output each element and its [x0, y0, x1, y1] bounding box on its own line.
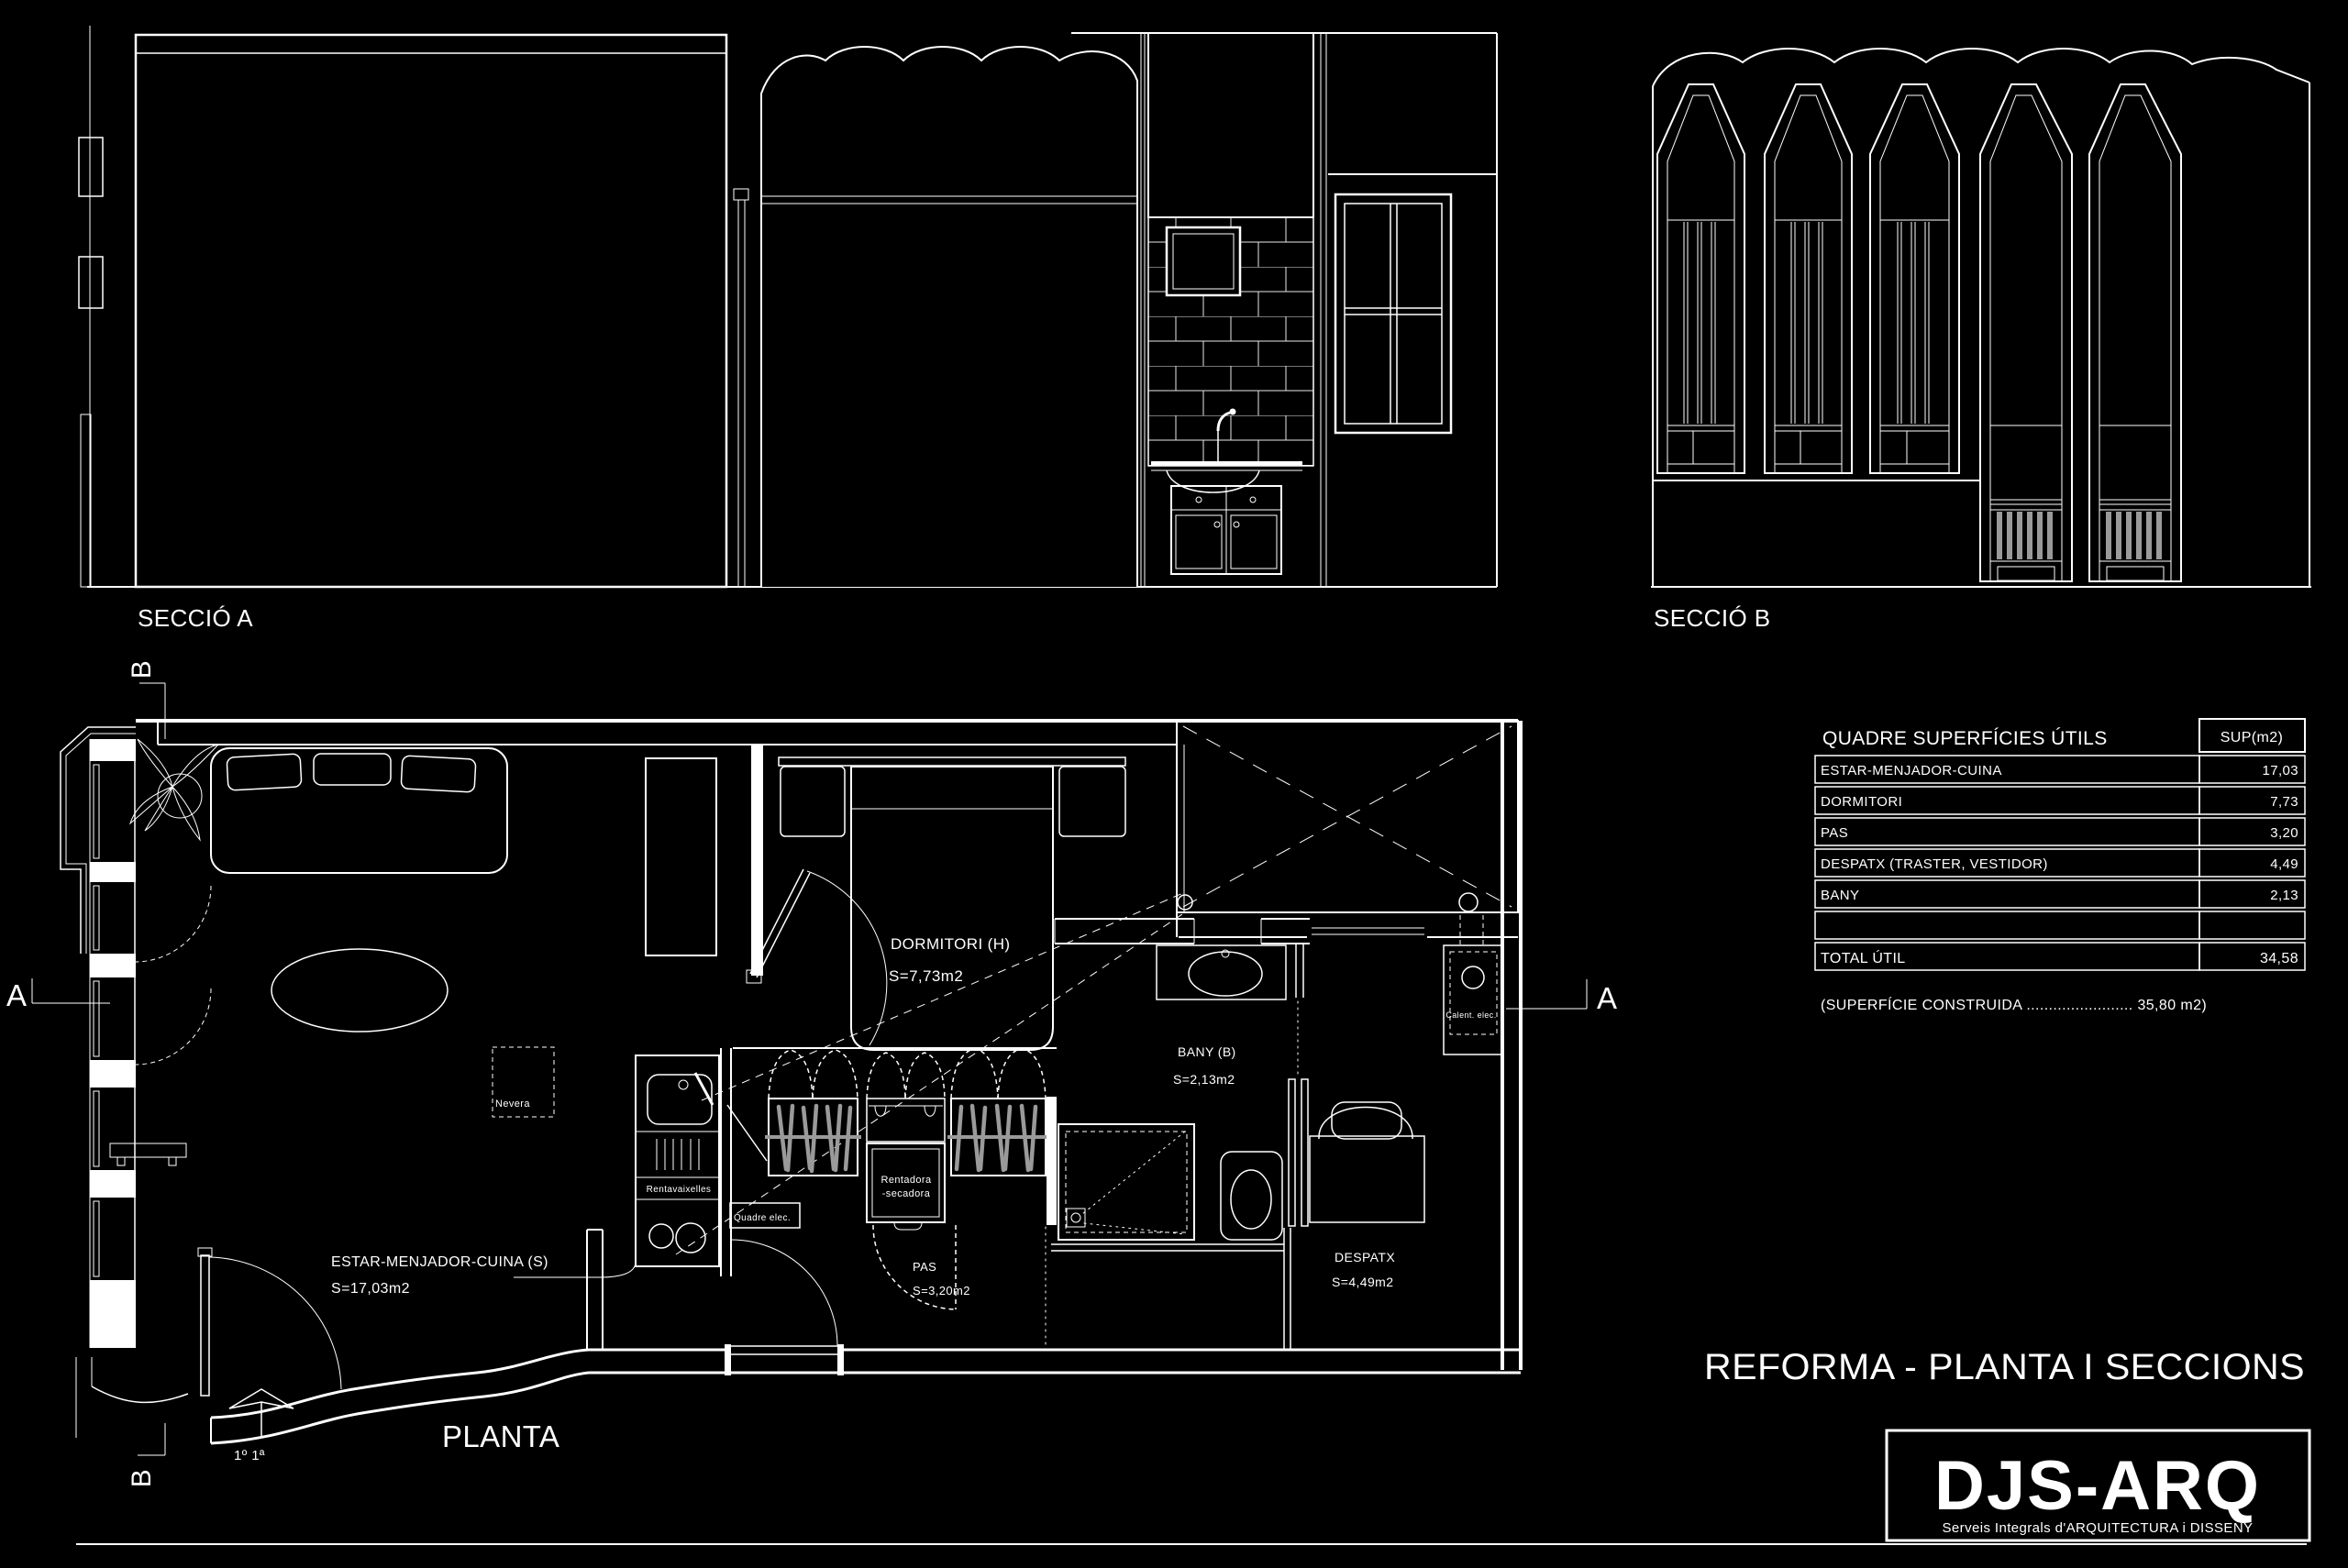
- table-row-empty: [1815, 911, 2305, 939]
- total-label: TOTAL ÚTIL: [1821, 949, 1906, 966]
- plant-icon: [130, 739, 218, 840]
- estar-name: ESTAR-MENJADOR-CUINA (S): [331, 1254, 548, 1270]
- arched-window: [1765, 84, 1852, 473]
- row-label: BANY: [1821, 888, 1859, 903]
- rentadora-label-1: Rentadora: [881, 1175, 932, 1186]
- arched-window: [1870, 84, 1959, 473]
- sliding-door-leaf: [1301, 1079, 1308, 1226]
- bany-name: BANY (B): [1178, 1044, 1236, 1059]
- arched-window: [1657, 84, 1744, 473]
- washer-dryer: Rentadora -secadora: [867, 1143, 945, 1230]
- table-footnote: (SUPERFÍCIE CONSTRUIDA .................…: [1821, 996, 2207, 1013]
- section-marker-a-right: A: [1506, 979, 1617, 1015]
- table-row: DESPATX (TRASTER, VESTIDOR) 4,49: [1815, 849, 2305, 877]
- table-row: BANY 2,13: [1815, 880, 2305, 908]
- pas-name: PAS: [913, 1260, 936, 1274]
- row-label: PAS: [1821, 825, 1848, 841]
- marker-b-letter: B: [127, 1469, 157, 1487]
- bany-area: S=2,13m2: [1173, 1072, 1235, 1087]
- sliding-door-leaf: [1289, 1079, 1295, 1226]
- wardrobe-door-swings: [769, 1048, 1046, 1099]
- toilet: [1221, 1152, 1282, 1240]
- sink-bowl: [1167, 470, 1259, 492]
- facade-left: [61, 727, 211, 1348]
- logo-subtitle: Serveis Integrals d'ARQUITECTURA i DISSE…: [1943, 1520, 2254, 1536]
- section-a-left-wall: [136, 35, 726, 587]
- wardrobe-area: Rentadora -secadora: [765, 1048, 1057, 1346]
- seccio-b-drawing: [1651, 49, 2311, 587]
- entry-door-leaf: [201, 1255, 209, 1396]
- bany-room: BANY (B) S=2,13m2: [1051, 919, 1310, 1251]
- fridge-nevera: Nevera: [493, 1047, 554, 1117]
- pas-corridor: PAS S=3,20m2: [873, 1225, 970, 1309]
- dormitori-area: S=7,73m2: [889, 967, 963, 985]
- section-marker-b-bottom: B: [127, 1423, 165, 1487]
- estar-area: S=17,03m2: [331, 1281, 410, 1297]
- drawing-title: REFORMA - PLANTA I SECCIONS: [1704, 1347, 2305, 1387]
- nevera-label: Nevera: [495, 1099, 530, 1110]
- despatx-area: S=4,49m2: [1332, 1275, 1393, 1289]
- arched-door: [2089, 84, 2181, 581]
- nightstand: [781, 767, 845, 836]
- dormitori-room: DORMITORI (H) S=7,73m2: [646, 721, 1184, 1050]
- surface-table: QUADRE SUPERFÍCIES ÚTILS SUP(m2) ESTAR-M…: [1815, 719, 2305, 1013]
- water-heater: Calent. elec.: [1444, 915, 1503, 1055]
- planta-drawing: Nevera Rentavaixelles Quadre elec.: [6, 660, 1617, 1487]
- estar-door: [731, 1240, 837, 1354]
- total-value: 34,58: [2260, 951, 2298, 966]
- row-value: 2,13: [2270, 888, 2298, 903]
- marker-b-letter: B: [127, 660, 157, 679]
- nightstand: [1059, 767, 1125, 836]
- entry: [76, 1248, 589, 1443]
- door-swing: [209, 1257, 341, 1389]
- row-label: DORMITORI: [1821, 794, 1902, 810]
- logo-text: DJS-ARQ: [1934, 1447, 2261, 1525]
- oval-table: [271, 949, 448, 1032]
- kitchen-faucet: [695, 1073, 713, 1105]
- burner: [649, 1224, 673, 1248]
- entry-arrow: [229, 1389, 293, 1436]
- table-title: QUADRE SUPERFÍCIES ÚTILS: [1822, 728, 2108, 749]
- bany-sink: [1157, 945, 1286, 999]
- row-value: 17,03: [2262, 763, 2298, 778]
- row-label: ESTAR-MENJADOR-CUINA: [1821, 763, 2002, 778]
- planta-label: PLANTA: [442, 1419, 559, 1453]
- rentadora-label-2: -secadora: [882, 1188, 931, 1199]
- marker-a-letter: A: [1597, 981, 1617, 1015]
- calent-elec-label: Calent. elec.: [1445, 1010, 1496, 1020]
- rentavaixelles-label: Rentavaixelles: [647, 1185, 712, 1195]
- mirror-cabinet: [1167, 227, 1240, 295]
- shower: [1058, 1124, 1194, 1240]
- section-marker-a-left: A: [6, 978, 110, 1012]
- table-row: ESTAR-MENJADOR-CUINA 17,03: [1815, 756, 2305, 783]
- despatx-name: DESPATX: [1335, 1250, 1395, 1264]
- row-value: 7,73: [2270, 794, 2298, 810]
- table-unit-header: SUP(m2): [2221, 730, 2284, 745]
- quadre-elec-label: Quadre elec.: [734, 1213, 791, 1223]
- section-window: [1335, 194, 1451, 433]
- balcony-bench: [110, 1143, 186, 1165]
- dormitori-name: DORMITORI (H): [891, 935, 1010, 953]
- sofa: [211, 748, 507, 873]
- desk: [1310, 1136, 1424, 1222]
- table-row-total: TOTAL ÚTIL 34,58: [1815, 943, 2305, 970]
- estar-closet: [646, 758, 716, 955]
- row-label: DESPATX (TRASTER, VESTIDOR): [1821, 856, 2048, 872]
- drawing-canvas: SECCIÓ A: [0, 0, 2348, 1568]
- table-row: DORMITORI 7,73: [1815, 787, 2305, 814]
- marker-a-letter: A: [6, 978, 27, 1012]
- vanity-cabinet: [1171, 486, 1281, 574]
- patio-traster: [1177, 721, 1518, 937]
- floor-marker-label: 1º 1ª: [234, 1448, 265, 1463]
- seccio-a-label: SECCIÓ A: [138, 604, 253, 632]
- title-block: REFORMA - PLANTA I SECCIONS DJS-ARQ Serv…: [1704, 1347, 2309, 1540]
- headboard: [779, 757, 1125, 766]
- curtain-section: [761, 47, 1137, 587]
- plan-walls: [136, 721, 1521, 1375]
- seccio-b-label: SECCIÓ B: [1654, 604, 1770, 632]
- scalloped-roofline: [1653, 49, 2309, 86]
- door-swing: [731, 1240, 837, 1346]
- row-value: 4,49: [2270, 856, 2298, 872]
- despatx-room: DESPATX S=4,49m2: [1284, 1079, 1424, 1350]
- kitchen-unit: Rentavaixelles: [514, 1055, 719, 1277]
- table-row: PAS 3,20: [1815, 818, 2305, 845]
- seccio-a-drawing: [79, 26, 1497, 587]
- pas-area: S=3,20m2: [913, 1284, 970, 1297]
- quadre-elec-box: Quadre elec.: [730, 1203, 800, 1228]
- architectural-sheet: SECCIÓ A: [0, 0, 2348, 1568]
- door-swing: [807, 871, 887, 1045]
- arched-door: [1980, 84, 2072, 581]
- row-value: 3,20: [2270, 825, 2298, 841]
